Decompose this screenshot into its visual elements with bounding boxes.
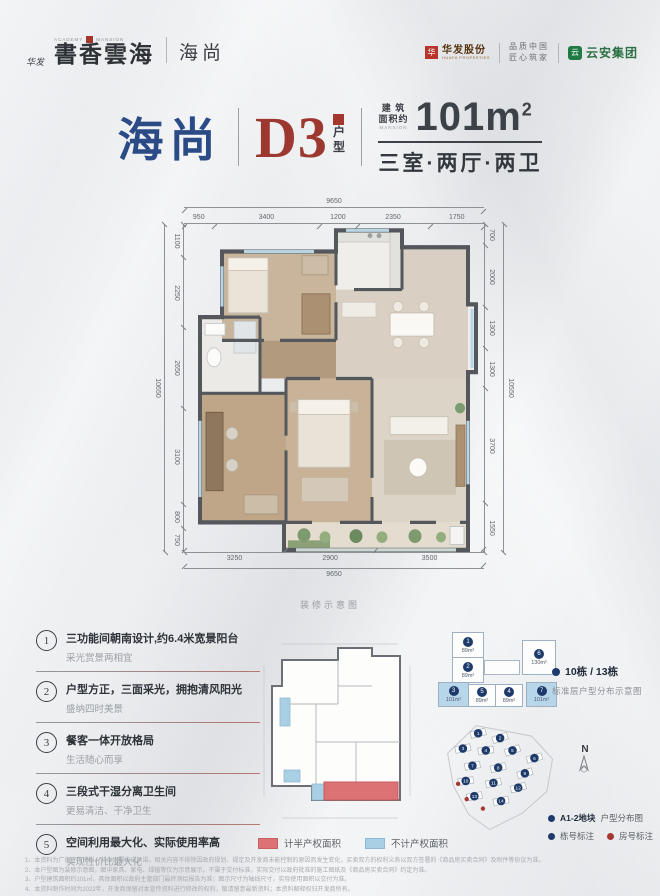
feature-title: 三段式干湿分离卫生间 [66, 786, 176, 798]
red-swatch-icon [258, 838, 278, 849]
dim-label: 2900 [285, 555, 375, 562]
item-number-badge: 1 [36, 630, 57, 651]
item-number-badge: 3 [36, 732, 57, 753]
room-summary: 三室·两厅·两卫 [378, 147, 542, 177]
unit-number-badge: 5 [477, 687, 487, 697]
divider [558, 43, 559, 63]
feature-list: 1 三功能间朝南设计,约6.4米宽景阳台 采光赏景两相宜 2 户型方正，三面采光… [36, 624, 260, 872]
item-number-badge: 5 [36, 834, 57, 855]
floorplate-diagram: 1 89m² 2 89m² 6 130m² 3 101m² 5 89m² 4 8… [438, 632, 556, 706]
svg-text:14: 14 [498, 799, 504, 805]
floorplate-subtitle: 标准层户型分布示意图 [552, 685, 642, 697]
dim-label: 3250 [184, 555, 285, 562]
unit-number-badge: 1 [463, 637, 473, 647]
dim-label: 750 [173, 535, 180, 547]
disclaimer-text: 1、本资料为广告宣传资料，非合同要约或承诺，相关内容不排除因政府规划、规定及开发… [25, 857, 637, 895]
feature-desc: 盛纳四时美景 [66, 701, 242, 715]
huafa-mini-label: 华发 [26, 58, 44, 67]
svg-text:6: 6 [533, 756, 536, 762]
feature-desc: 更易清洁、干净卫生 [66, 803, 176, 817]
dim-label: 3400 [214, 214, 320, 221]
yunan-group-logo: 云 云安集团 [568, 44, 638, 61]
dim-label: 2000 [488, 269, 495, 285]
yunan-group-name: 云安集团 [586, 44, 638, 61]
unit-block-6: 6 130m² [522, 640, 556, 675]
dim-rail-bottom: 3250 2900 3500 9650 [184, 552, 484, 590]
legend-item-blue: 不计产权面积 [365, 836, 448, 850]
disclaimer-line: 2、本户型图为装修示意图，图中家具、家电、绿植等仅为示意展示，不属于交付标准，实… [25, 867, 637, 877]
unit-block-1: 1 89m² [452, 632, 484, 658]
unit-number-badge: 6 [534, 649, 544, 659]
dim-label: 1100 [173, 233, 180, 248]
disclaimer-line: 1、本资料为广告宣传资料，非合同要约或承诺，相关内容不排除因政府规划、规定及开发… [25, 857, 637, 867]
dim-label: 1300 [488, 320, 495, 336]
title-block: 海尚 D3 户 型 建 筑 面积约 MANSION 101m2 三室·两厅·两卫 [0, 98, 660, 177]
marker-dot-icon [548, 815, 555, 822]
feature-title: 空间利用最大化、实际使用率高 [66, 837, 220, 849]
calligraphy-block: ACADEMY MANSION 書香雲海 [54, 36, 154, 67]
room-dot-icon [607, 833, 614, 840]
area-prefix-1: 建 筑 [382, 103, 406, 114]
unit-number-badge: 2 [463, 662, 473, 672]
svg-text:4: 4 [484, 748, 487, 754]
unit-code: D3 [255, 110, 328, 165]
divider [36, 671, 260, 672]
svg-text:7: 7 [471, 763, 474, 769]
floorplate-core [484, 660, 520, 675]
disclaimer-line: 4、本资料制作时间为2022年，开发商保留对本宣传资料进行修改的权利，敬请留意最… [25, 886, 637, 896]
svg-text:13: 13 [472, 794, 478, 800]
legend-building-label: 栋号标注 [560, 830, 594, 842]
slogan-line-1: 品质中国 [509, 42, 549, 53]
divider [238, 108, 240, 166]
divider [499, 43, 500, 63]
divider [166, 37, 167, 63]
north-label: N [577, 744, 593, 755]
unit-seal-icon [333, 114, 344, 125]
svg-text:10: 10 [463, 779, 469, 785]
dim-label: 3700 [488, 438, 495, 454]
unit-area: 89m² [476, 698, 489, 704]
building-dot-icon [548, 833, 555, 840]
feature-title: 三功能间朝南设计,约6.4米宽景阳台 [66, 633, 238, 645]
area-value: 101m2 [415, 98, 532, 136]
svg-text:8: 8 [497, 765, 500, 771]
siteplan-diagram: 1 2 3 4 5 6 7 8 9 10 [440, 720, 564, 840]
list-item: 4 三段式干湿分离卫生间 更易清洁、干净卫生 [36, 777, 260, 821]
dim-rail-left: 10650 1100 2250 2650 3100 800 750 [146, 224, 184, 552]
dim-label: 1300 [488, 361, 495, 377]
siteplan-legend: A1-2地块户型分布图 栋号标注 房号标注 [548, 806, 653, 842]
floorplan-block: 9650 950 3400 1200 2350 1750 10650 1100 … [146, 186, 522, 590]
unit-area: 130m² [531, 660, 547, 666]
plan-caption: 装修示意图 [0, 598, 660, 611]
dim-label: 2650 [173, 360, 180, 376]
list-item: 3 餐客一体开放格局 生活随心而享 [36, 726, 260, 770]
legend-label: 计半产权面积 [284, 836, 341, 850]
unit-block-3-highlighted: 3 101m² [438, 682, 469, 707]
brand-slogan: 品质中国 匠心筑家 [509, 42, 549, 64]
north-indicator: N [577, 744, 593, 773]
disclaimer-line: 3、户型建筑面积约101㎡，具体面积以政府主管部门最终测绘报告为准；图示尺寸为轴… [25, 876, 637, 886]
divider [36, 722, 260, 723]
ownership-mini-plan [260, 638, 414, 826]
svg-text:5: 5 [511, 748, 514, 754]
dim-label: 10650 [154, 378, 161, 397]
feature-desc: 采光赏景两相宜 [66, 650, 238, 664]
unit-block-5: 5 89m² [468, 684, 496, 707]
dim-label: 9650 [184, 571, 484, 578]
svg-text:12: 12 [516, 785, 522, 791]
svg-text:9: 9 [524, 771, 527, 777]
poster-page: 华发 ACADEMY MANSION 書香雲海 海尚 华 华发股份 HUAFA … [0, 0, 660, 896]
unit-type-char-1: 户 [333, 126, 345, 140]
unit-number-badge: 4 [504, 687, 514, 697]
dim-rail-top: 9650 950 3400 1200 2350 1750 [184, 186, 484, 224]
slogan-line-2: 匠心筑家 [509, 53, 549, 64]
huafa-group-logo: 华 华发股份 HUAFA PROPERTIES [425, 45, 490, 60]
legend-room-label: 房号标注 [619, 830, 653, 842]
list-item: 1 三功能间朝南设计,约6.4米宽景阳台 采光赏景两相宜 [36, 624, 260, 668]
feature-title: 户型方正，三面采光，拥抱清风阳光 [66, 684, 242, 696]
item-number-badge: 4 [36, 783, 57, 804]
dim-label: 2350 [357, 214, 430, 221]
area-prefix-2: 面积约 [378, 114, 408, 125]
siteplan-legend-title-bold: A1-2地块 [560, 812, 595, 824]
dim-label: 3100 [173, 449, 180, 465]
item-number-badge: 2 [36, 681, 57, 702]
dim-label: 9650 [184, 198, 484, 205]
divider [378, 141, 542, 143]
dim-label: 1200 [319, 214, 356, 221]
area-rooms-block: 建 筑 面积约 MANSION 101m2 三室·两厅·两卫 [378, 98, 542, 177]
huafa-group-sub: HUAFA PROPERTIES [442, 56, 490, 60]
unit-type-char-2: 型 [333, 141, 345, 155]
svg-text:2: 2 [499, 736, 502, 742]
partner-logos: 华 华发股份 HUAFA PROPERTIES 品质中国 匠心筑家 云 云安集团 [425, 42, 638, 64]
unit-area: 89m² [503, 698, 516, 704]
brand-logo: 华发 ACADEMY MANSION 書香雲海 海尚 [26, 36, 225, 67]
list-item: 2 户型方正，三面采光，拥抱清风阳光 盛纳四时美景 [36, 675, 260, 719]
unit-area: 89m² [462, 673, 475, 679]
unit-code-block: D3 户 型 [255, 110, 345, 165]
svg-text:1: 1 [477, 731, 480, 737]
series-name: 海尚 [179, 38, 225, 67]
unit-number-badge: 3 [449, 686, 459, 696]
dim-rail-right: 700 2000 1300 1300 3700 1550 10550 [484, 224, 522, 552]
page-title: 海尚 [118, 104, 222, 170]
dim-label: 800 [173, 511, 180, 523]
ownership-legend: 计半产权面积 不计产权面积 [258, 836, 448, 850]
unit-area: 89m² [462, 648, 475, 654]
dim-label: 2250 [173, 285, 180, 301]
divider [36, 824, 260, 825]
floorplate-title: 10栋 / 13栋 [565, 664, 618, 679]
unit-area: 101m² [534, 697, 550, 703]
floorplan-drawing [184, 224, 484, 552]
svg-text:3: 3 [462, 746, 465, 752]
compass-icon [577, 755, 591, 773]
dim-label: 1550 [488, 520, 495, 536]
feature-title: 餐客一体开放格局 [66, 735, 154, 747]
unit-area: 101m² [446, 697, 462, 703]
unit-number-badge: 7 [537, 686, 547, 696]
legend-item-red: 计半产权面积 [258, 836, 341, 850]
huafa-logo-icon: 华 [425, 46, 438, 59]
dim-label: 3500 [375, 555, 484, 562]
dim-label: 700 [488, 229, 495, 241]
feature-desc: 生活随心而享 [66, 752, 154, 766]
floorplate-label: 10栋 / 13栋 标准层户型分布示意图 [552, 664, 642, 697]
unit-block-2: 2 89m² [452, 657, 484, 683]
divider [36, 773, 260, 774]
marker-dot-icon [552, 668, 560, 676]
yunan-logo-icon: 云 [568, 46, 582, 60]
divider [361, 108, 363, 166]
siteplan-legend-title-rest: 户型分布图 [600, 812, 643, 824]
dim-label: 10550 [507, 378, 514, 397]
area-prefix-3: MANSION [379, 125, 407, 131]
svg-text:11: 11 [491, 781, 496, 787]
dim-label: 1750 [430, 214, 484, 221]
dim-label: 950 [184, 214, 214, 221]
blue-swatch-icon [365, 838, 385, 849]
brand-calligraphy: 書香雲海 [54, 43, 154, 67]
unit-block-4: 4 89m² [495, 684, 523, 707]
